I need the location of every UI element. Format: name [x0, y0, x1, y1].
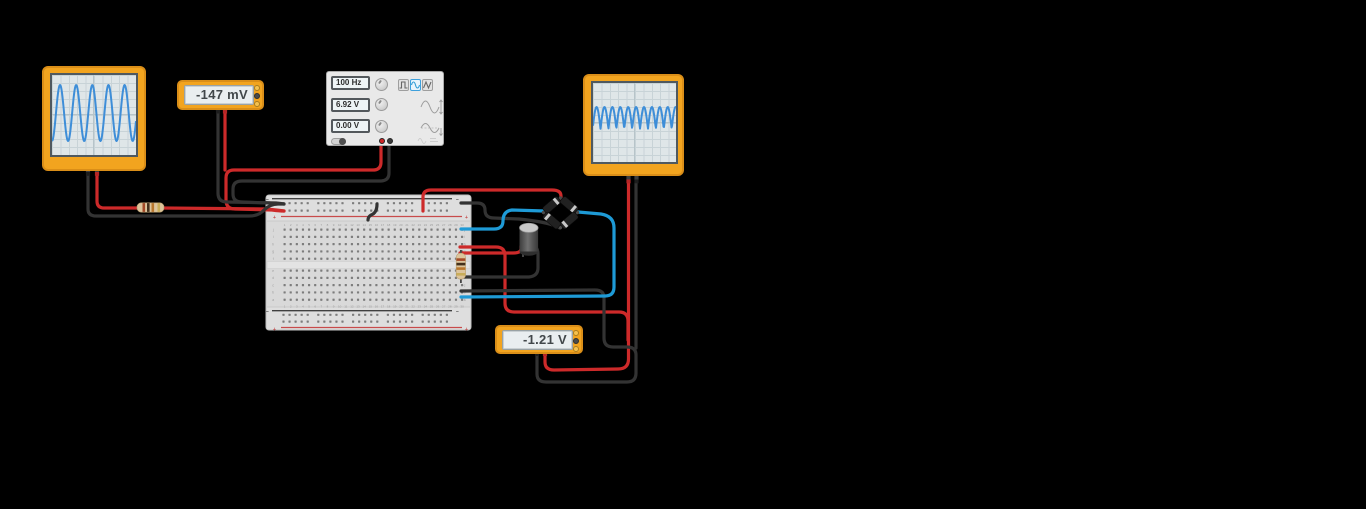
svg-text:18: 18 [387, 223, 391, 227]
oscilloscope-left-screen [50, 73, 138, 157]
svg-text:26: 26 [436, 223, 440, 227]
rectified-trace [593, 83, 676, 162]
svg-text:17: 17 [381, 223, 385, 227]
multimeter-top-display: -147 mV [184, 85, 254, 105]
power-toggle[interactable] [331, 138, 346, 145]
band [457, 258, 466, 261]
mode-button-icon[interactable] [573, 330, 579, 336]
mode-button-icon[interactable] [573, 346, 579, 352]
svg-text:27: 27 [442, 223, 446, 227]
band [152, 203, 155, 212]
multimeter-bottom[interactable]: -1.21 V [495, 325, 583, 354]
plus-sign: + [465, 215, 468, 221]
svg-text:23: 23 [418, 223, 422, 227]
svg-text:11: 11 [344, 304, 347, 308]
mode-button-icon[interactable] [254, 93, 260, 99]
funcgen-negative-terminal[interactable] [387, 138, 393, 144]
triangle-wave-icon [423, 80, 432, 90]
mode-button-icon[interactable] [573, 338, 579, 344]
svg-text:19: 19 [393, 304, 397, 308]
svg-text:21: 21 [405, 223, 409, 227]
plus-sign: + [273, 215, 276, 221]
svg-text:20: 20 [399, 223, 403, 227]
svg-text:14: 14 [362, 223, 366, 227]
svg-text:15: 15 [369, 304, 373, 308]
resistor-horizontal[interactable] [137, 203, 164, 212]
svg-text:16: 16 [375, 223, 379, 227]
svg-text:30: 30 [460, 223, 464, 227]
resistor-vertical[interactable] [456, 250, 465, 283]
plus-sign: + [465, 327, 468, 333]
diode[interactable] [542, 211, 562, 229]
function-generator[interactable]: 100 Hz 6.92 V 0.00 V [326, 71, 444, 146]
svg-text:22: 22 [411, 304, 415, 308]
dc-offset-display[interactable]: 0.00 V [331, 119, 370, 133]
cap-top [520, 223, 539, 232]
oscilloscope-right-screen [591, 81, 678, 164]
amplitude-icon [420, 97, 443, 117]
svg-text:17: 17 [381, 304, 385, 308]
svg-text:j: j [272, 228, 274, 232]
svg-text:a: a [464, 298, 466, 302]
band [457, 267, 466, 270]
waveform-button-sine[interactable] [410, 79, 421, 91]
wire-red-scope1-to-resistor[interactable] [97, 172, 137, 208]
breadboard-center-channel [267, 262, 470, 269]
svg-text:f: f [273, 257, 274, 261]
svg-text:12: 12 [350, 223, 354, 227]
svg-text:15: 15 [369, 223, 373, 227]
svg-text:23: 23 [418, 304, 422, 308]
multimeter-top-mode-buttons [254, 85, 260, 107]
svg-text:26: 26 [436, 304, 440, 308]
diode[interactable] [559, 211, 579, 229]
waveform-button-square[interactable] [398, 79, 409, 91]
svg-text:21: 21 [405, 304, 409, 308]
svg-text:22: 22 [411, 223, 415, 227]
svg-text:29: 29 [454, 304, 458, 308]
multimeter-top[interactable]: -147 mV [177, 80, 264, 110]
svg-text:13: 13 [356, 223, 360, 227]
svg-text:25: 25 [430, 304, 434, 308]
svg-text:18: 18 [387, 304, 391, 308]
minus-sign: − [456, 197, 459, 203]
wire-black-funcgen-to-board[interactable] [233, 146, 389, 203]
electrolytic-capacitor[interactable] [520, 223, 539, 257]
svg-text:30: 30 [460, 304, 464, 308]
frequency-display[interactable]: 100 Hz [331, 76, 370, 90]
svg-text:24: 24 [424, 304, 428, 308]
svg-text:28: 28 [448, 304, 452, 308]
oscilloscope-right[interactable] [583, 74, 684, 176]
square-wave-icon [399, 80, 408, 90]
svg-text:h: h [272, 242, 274, 246]
svg-text:10: 10 [338, 223, 342, 227]
circuit-canvas: − − + + − − + + 112233445566778899101011… [0, 0, 1366, 509]
diode[interactable] [542, 196, 562, 214]
band [147, 203, 150, 212]
svg-text:13: 13 [356, 304, 360, 308]
minus-sign: − [266, 309, 269, 315]
mode-button-icon[interactable] [254, 101, 260, 107]
svg-text:27: 27 [442, 304, 446, 308]
amplitude-knob[interactable] [375, 98, 388, 111]
svg-text:28: 28 [448, 223, 452, 227]
funcgen-logo [417, 136, 443, 145]
oscilloscope-left[interactable] [42, 66, 146, 171]
plus-sign: + [273, 327, 276, 333]
svg-text:19: 19 [393, 223, 397, 227]
frequency-knob[interactable] [375, 78, 388, 91]
band [457, 273, 466, 276]
amplitude-display[interactable]: 6.92 V [331, 98, 370, 112]
multimeter-bottom-display: -1.21 V [502, 330, 573, 350]
svg-text:20: 20 [399, 304, 403, 308]
svg-text:12: 12 [350, 304, 354, 308]
svg-text:d: d [272, 276, 274, 280]
band [457, 263, 466, 266]
wire-black-multimeter1[interactable] [218, 110, 284, 204]
svg-text:24: 24 [424, 223, 428, 227]
svg-text:10: 10 [338, 304, 342, 308]
svg-text:11: 11 [344, 223, 347, 227]
funcgen-positive-terminal[interactable] [379, 138, 385, 144]
svg-text:14: 14 [362, 304, 366, 308]
sine-wave-icon [411, 80, 420, 90]
band [158, 203, 161, 212]
diode[interactable] [559, 196, 579, 214]
mode-button-icon[interactable] [254, 85, 260, 91]
svg-text:a: a [272, 298, 274, 302]
svg-text:16: 16 [375, 304, 379, 308]
multimeter-bottom-mode-buttons [573, 330, 579, 352]
waveform-button-triangle[interactable] [422, 79, 433, 91]
minus-sign: − [456, 309, 459, 315]
svg-text:29: 29 [454, 223, 458, 227]
svg-text:25: 25 [430, 223, 434, 227]
band [143, 203, 146, 212]
dc-offset-knob[interactable] [375, 120, 388, 133]
svg-text:e: e [272, 269, 274, 273]
svg-text:g: g [272, 250, 274, 254]
svg-text:b: b [272, 291, 274, 295]
toggle-knob [339, 138, 346, 145]
scope2-terminals[interactable] [626, 175, 638, 183]
sine-trace [52, 75, 136, 155]
